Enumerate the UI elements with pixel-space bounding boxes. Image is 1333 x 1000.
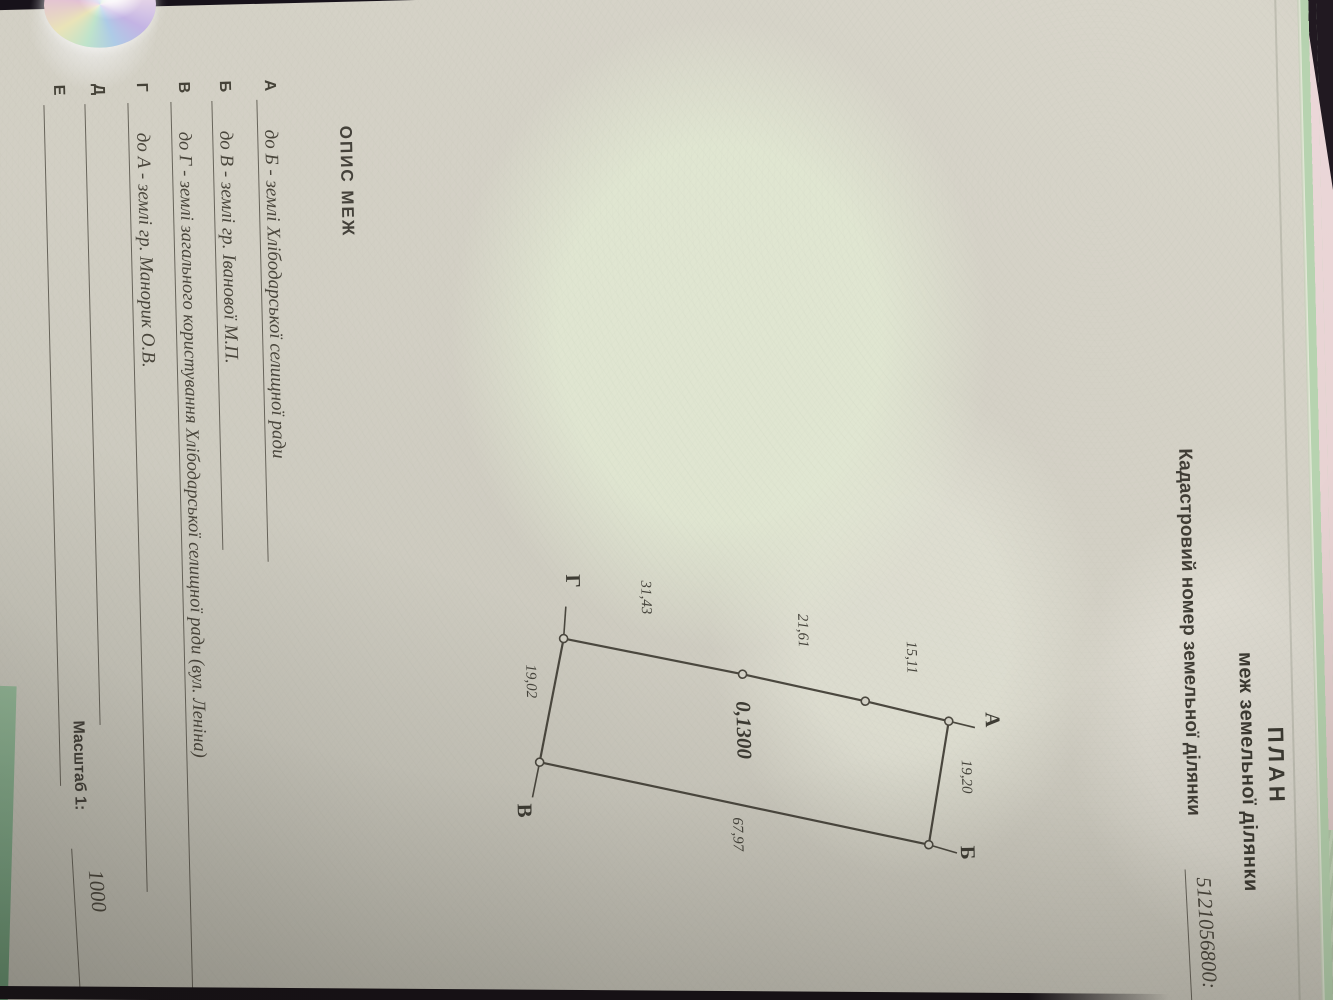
vertex-label-b: Б <box>955 845 980 859</box>
intermediate-point-2 <box>738 670 746 678</box>
scale-label: Масштаб 1: <box>68 720 88 810</box>
boundary-letter-g: Г <box>132 83 150 93</box>
boundary-edge-a-b <box>926 721 952 845</box>
dim-mid-seg: 21,61 <box>793 614 811 648</box>
document-sheet: ПЛАН меж земельної ділянки Кадастровий н… <box>0 0 1333 1000</box>
boundary-edge-v-g <box>537 639 567 763</box>
vertex-label-v: В <box>512 803 537 818</box>
dim-a-b: 19,20 <box>957 760 975 794</box>
boundary-letter-d: Д <box>89 84 107 96</box>
dim-a-seg: 15,11 <box>902 641 920 674</box>
vertex-point-a <box>945 717 953 725</box>
document-title: ПЛАН <box>1261 691 1291 842</box>
area-value: 0,1300 <box>730 701 756 759</box>
boundaries-heading: ОПИС МЕЖ <box>335 126 358 238</box>
intermediate-point-1 <box>861 697 869 705</box>
dim-g-v: 19,02 <box>521 664 539 698</box>
scale-value: 1000 <box>83 869 112 913</box>
vertex-point-v <box>536 758 544 766</box>
boundary-letter-a: А <box>260 79 278 91</box>
photo-of-land-plan-document: ПЛАН меж земельної ділянки Кадастровий н… <box>0 0 1333 1000</box>
dim-g-seg: 31,43 <box>636 580 654 614</box>
vertex-point-b <box>925 841 933 849</box>
dim-b-v: 67,97 <box>728 817 746 851</box>
vertex-label-a: А <box>980 712 1005 728</box>
tick-g <box>563 607 567 639</box>
boundary-letter-b: Б <box>215 80 233 92</box>
vertex-label-g: Г <box>560 574 585 588</box>
boundary-letter-v: В <box>174 81 192 93</box>
boundary-letter-e: Е <box>49 85 67 96</box>
boundary-edge-a-g <box>564 629 949 730</box>
vertex-point-g <box>560 634 568 642</box>
tick-v <box>532 762 541 797</box>
